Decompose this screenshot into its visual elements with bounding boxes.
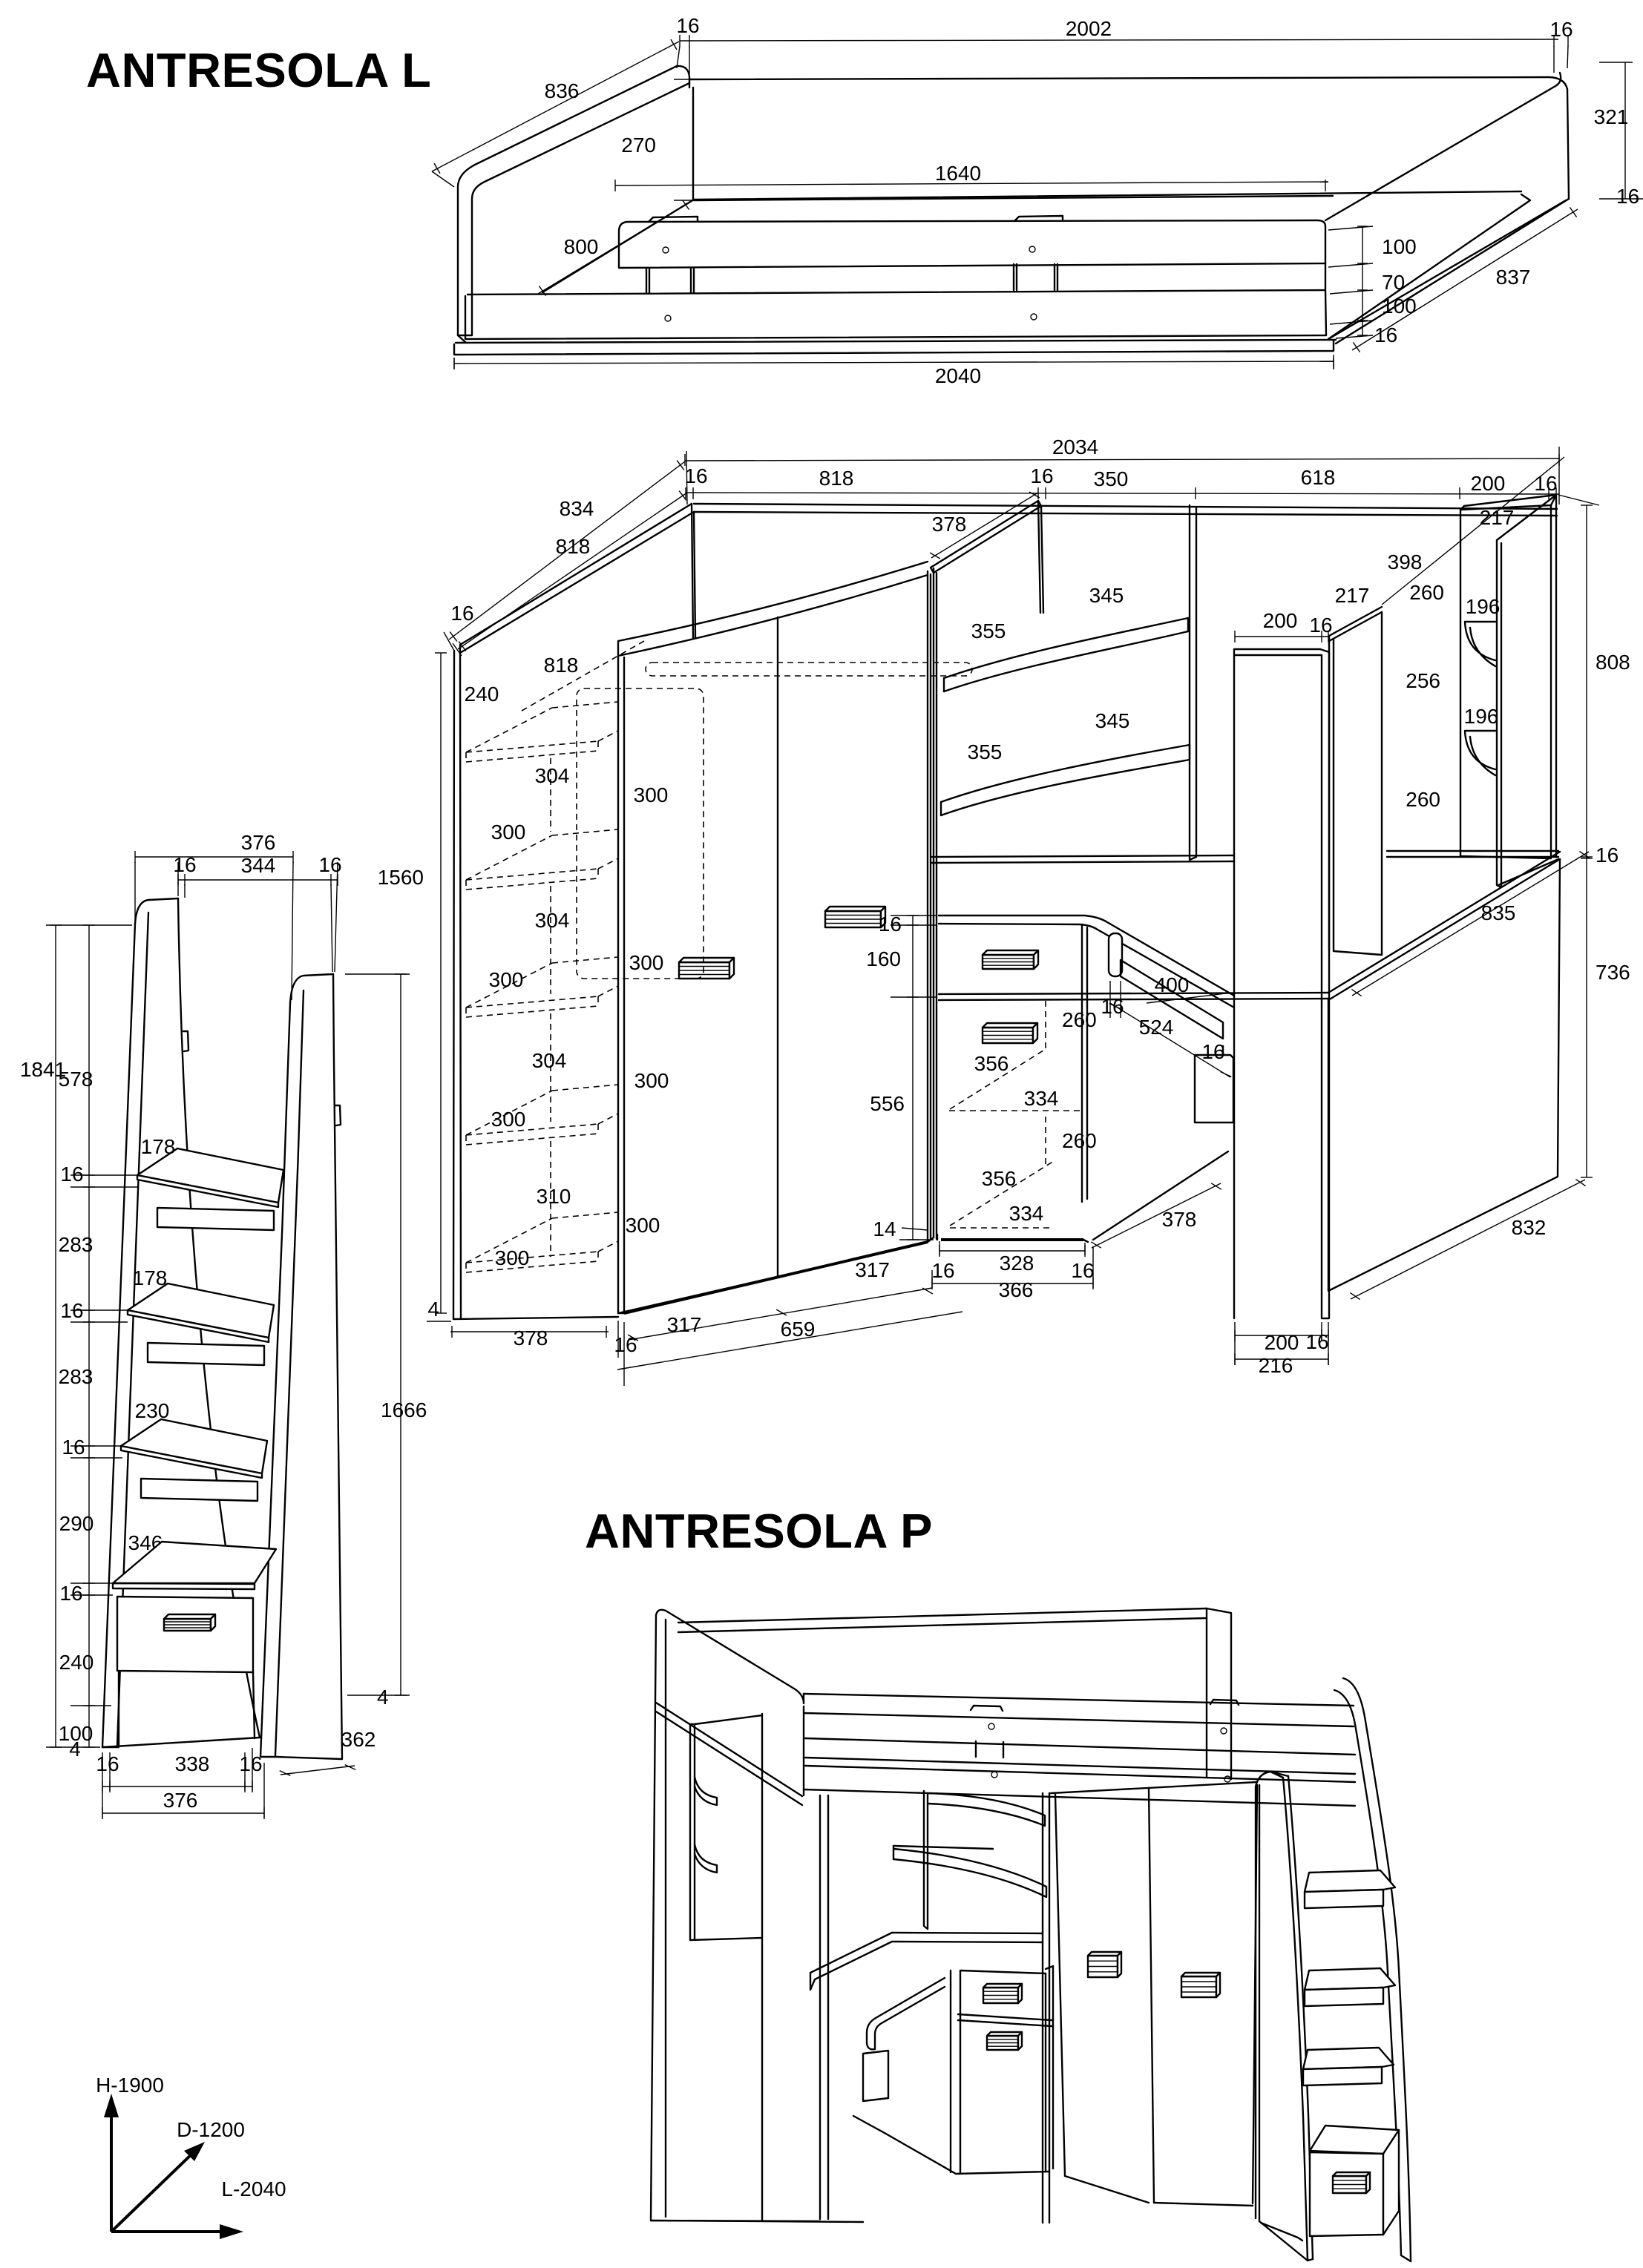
- svg-text:216: 216: [1259, 1354, 1293, 1377]
- svg-text:818: 818: [819, 467, 854, 490]
- svg-text:356: 356: [982, 1167, 1017, 1190]
- svg-text:ANTRESOLA P: ANTRESOLA P: [585, 1504, 933, 1558]
- svg-text:196: 196: [1466, 595, 1501, 618]
- svg-text:217: 217: [1335, 584, 1370, 607]
- svg-text:16: 16: [60, 1163, 83, 1186]
- svg-text:200: 200: [1263, 609, 1298, 632]
- svg-text:200: 200: [1265, 1331, 1299, 1354]
- svg-text:618: 618: [1301, 466, 1336, 489]
- svg-text:2040: 2040: [935, 364, 981, 387]
- svg-text:178: 178: [133, 1266, 168, 1289]
- svg-text:355: 355: [971, 619, 1006, 642]
- svg-text:4: 4: [427, 1298, 439, 1321]
- svg-text:240: 240: [59, 1651, 94, 1674]
- svg-text:836: 836: [545, 79, 580, 102]
- svg-text:300: 300: [626, 1214, 660, 1237]
- svg-text:16: 16: [239, 1752, 262, 1775]
- svg-text:196: 196: [1464, 705, 1499, 728]
- svg-text:1666: 1666: [381, 1398, 427, 1421]
- svg-text:736: 736: [1596, 961, 1630, 984]
- svg-text:290: 290: [59, 1512, 94, 1535]
- svg-text:356: 356: [974, 1052, 1009, 1075]
- svg-text:300: 300: [634, 783, 669, 806]
- svg-text:100: 100: [1382, 295, 1417, 318]
- svg-text:14: 14: [873, 1217, 896, 1240]
- svg-text:345: 345: [1095, 709, 1130, 732]
- svg-text:800: 800: [564, 235, 599, 258]
- svg-text:345: 345: [1089, 584, 1124, 607]
- svg-text:260: 260: [1406, 788, 1440, 811]
- svg-text:16: 16: [1549, 18, 1573, 41]
- svg-text:334: 334: [1009, 1202, 1044, 1225]
- svg-text:16: 16: [1596, 844, 1619, 867]
- svg-text:1640: 1640: [935, 162, 981, 185]
- svg-text:338: 338: [175, 1752, 210, 1775]
- svg-text:16: 16: [59, 1582, 82, 1605]
- svg-text:808: 808: [1596, 651, 1630, 674]
- svg-text:70: 70: [1382, 271, 1405, 294]
- svg-text:300: 300: [495, 1246, 530, 1269]
- svg-text:837: 837: [1496, 266, 1531, 289]
- svg-text:16: 16: [318, 853, 341, 876]
- svg-text:16: 16: [1616, 185, 1639, 208]
- svg-text:304: 304: [535, 764, 570, 787]
- svg-text:556: 556: [870, 1092, 905, 1115]
- svg-text:317: 317: [855, 1258, 890, 1281]
- svg-text:362: 362: [341, 1728, 376, 1751]
- svg-text:2002: 2002: [1066, 17, 1112, 40]
- svg-text:256: 256: [1406, 669, 1440, 692]
- svg-text:328: 328: [1000, 1252, 1034, 1275]
- svg-text:300: 300: [634, 1069, 669, 1092]
- svg-text:260: 260: [1062, 1129, 1097, 1152]
- svg-text:160: 160: [866, 947, 901, 970]
- svg-text:16: 16: [1201, 1040, 1224, 1063]
- svg-text:D-1200: D-1200: [177, 2118, 245, 2141]
- svg-text:L-2040: L-2040: [221, 2177, 286, 2200]
- svg-text:16: 16: [450, 602, 473, 625]
- svg-text:334: 334: [1024, 1087, 1059, 1110]
- svg-text:1560: 1560: [378, 866, 424, 889]
- svg-text:240: 240: [465, 683, 499, 706]
- svg-text:378: 378: [514, 1327, 548, 1350]
- svg-text:16: 16: [676, 14, 699, 37]
- svg-text:16: 16: [1534, 472, 1557, 495]
- svg-text:16: 16: [614, 1333, 637, 1356]
- svg-text:16: 16: [1071, 1259, 1094, 1282]
- svg-text:16: 16: [60, 1299, 83, 1322]
- svg-text:310: 310: [537, 1185, 571, 1208]
- svg-text:300: 300: [489, 968, 524, 991]
- svg-text:16: 16: [96, 1752, 119, 1775]
- svg-text:230: 230: [135, 1399, 170, 1422]
- svg-text:283: 283: [59, 1365, 94, 1388]
- svg-text:818: 818: [544, 654, 579, 677]
- svg-text:835: 835: [1481, 901, 1516, 924]
- svg-text:16: 16: [1305, 1330, 1328, 1353]
- svg-text:378: 378: [932, 513, 967, 536]
- svg-text:832: 832: [1512, 1216, 1547, 1239]
- svg-text:16: 16: [931, 1259, 954, 1282]
- svg-text:304: 304: [532, 1049, 567, 1072]
- svg-text:300: 300: [491, 1108, 526, 1131]
- svg-text:100: 100: [1382, 235, 1417, 258]
- svg-text:16: 16: [62, 1436, 85, 1459]
- svg-text:376: 376: [163, 1789, 198, 1812]
- svg-text:366: 366: [999, 1278, 1034, 1301]
- svg-text:321: 321: [1594, 105, 1629, 128]
- svg-text:1841: 1841: [20, 1058, 66, 1081]
- svg-text:398: 398: [1388, 550, 1423, 573]
- svg-text:ANTRESOLA L: ANTRESOLA L: [86, 43, 431, 97]
- svg-text:300: 300: [629, 951, 664, 974]
- svg-text:378: 378: [1162, 1208, 1197, 1231]
- svg-text:4: 4: [377, 1686, 389, 1709]
- svg-text:300: 300: [491, 821, 526, 844]
- svg-text:217: 217: [1480, 506, 1515, 529]
- svg-text:260: 260: [1062, 1008, 1097, 1031]
- svg-text:524: 524: [1139, 1016, 1174, 1039]
- svg-text:2034: 2034: [1052, 435, 1098, 458]
- svg-text:270: 270: [621, 134, 656, 157]
- svg-text:376: 376: [241, 831, 276, 854]
- svg-text:304: 304: [535, 909, 570, 932]
- svg-text:16: 16: [173, 853, 196, 876]
- svg-text:16: 16: [1030, 464, 1053, 487]
- svg-text:16: 16: [684, 464, 707, 487]
- svg-text:834: 834: [560, 497, 594, 520]
- svg-text:16: 16: [1309, 614, 1332, 637]
- svg-text:178: 178: [141, 1135, 176, 1158]
- svg-text:260: 260: [1409, 581, 1444, 604]
- svg-text:H-1900: H-1900: [96, 2074, 164, 2097]
- svg-text:200: 200: [1471, 472, 1506, 495]
- svg-text:344: 344: [241, 854, 276, 877]
- svg-text:400: 400: [1155, 973, 1190, 996]
- svg-text:4: 4: [69, 1738, 81, 1761]
- svg-text:16: 16: [1374, 323, 1397, 346]
- svg-text:283: 283: [59, 1233, 94, 1256]
- svg-text:355: 355: [968, 740, 1003, 763]
- svg-text:350: 350: [1094, 467, 1129, 490]
